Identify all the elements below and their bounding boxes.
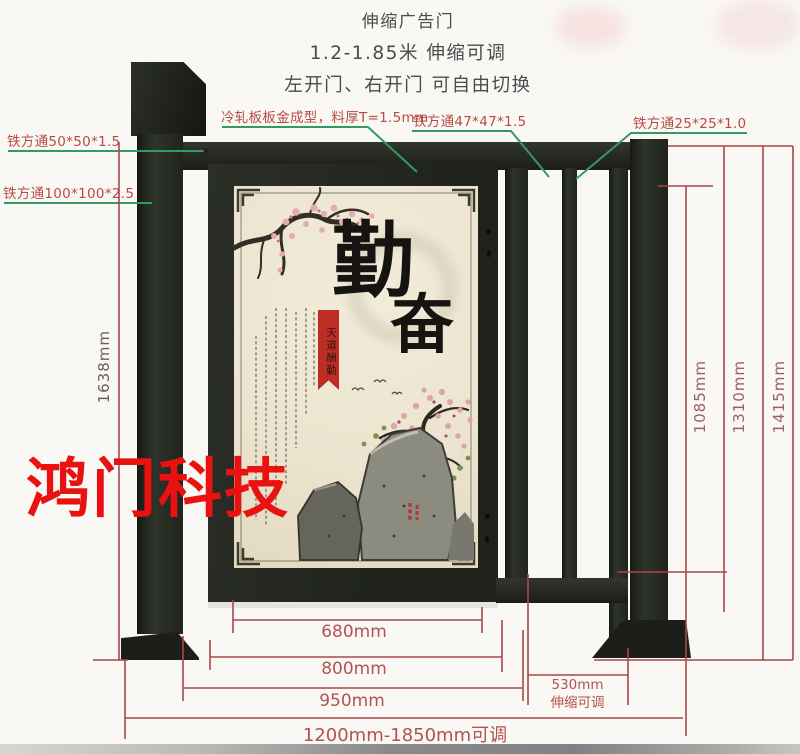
bottom-edge-band bbox=[0, 744, 800, 754]
telescopic-slat-2 bbox=[562, 168, 577, 600]
door-lock-dot bbox=[485, 536, 489, 543]
ink-rocks bbox=[298, 428, 474, 560]
callout-square-tube-100: 铁方通100*100*2.5 bbox=[3, 182, 134, 202]
callout-square-tube-25: 铁方通25*25*1.0 bbox=[633, 112, 746, 132]
gate-left-post bbox=[137, 134, 183, 634]
dim-telescopic-note: 伸缩可调 bbox=[535, 691, 620, 711]
dim-opening-height: 1085mm bbox=[691, 360, 709, 433]
callout-square-tube-50: 铁方通50*50*1.5 bbox=[7, 130, 120, 150]
page-subtitle-direction: 左开门、右开门 可自由切换 bbox=[0, 71, 800, 97]
telescopic-slat-3 bbox=[609, 168, 628, 640]
door-lock-dot bbox=[487, 250, 491, 257]
dim-post-height: 1638mm bbox=[95, 330, 113, 403]
callout-square-tube-47: 铁方通47*47*1.5 bbox=[413, 110, 526, 130]
telescopic-bottom-rail bbox=[496, 578, 628, 603]
calligraphy-fen: 奋 bbox=[390, 294, 454, 358]
birds bbox=[352, 380, 402, 394]
dim-total-height: 1415mm bbox=[770, 360, 788, 433]
page-title: 伸缩广告门 bbox=[0, 7, 800, 32]
dim-rail-height: 1310mm bbox=[730, 360, 748, 433]
dim-panel-width: 680mm bbox=[306, 622, 402, 642]
gate-right-post-base bbox=[592, 620, 691, 658]
watermark-brand: 鸿门科技 bbox=[26, 458, 290, 522]
callout-cold-rolled-panel: 冷轧板板金成型，料厚T=1.5mm bbox=[221, 106, 428, 126]
gate-left-post-base bbox=[121, 632, 199, 660]
door-lock-dot bbox=[486, 229, 491, 234]
page-subtitle-range: 1.2-1.85米 伸缩可调 bbox=[0, 39, 800, 65]
gate-right-post bbox=[630, 139, 668, 648]
seal-ribbon: 天道酬勤 bbox=[318, 310, 339, 390]
telescopic-slat-1 bbox=[505, 168, 528, 600]
product-diagram: 伸缩广告门 1.2-1.85米 伸缩可调 左开门、右开门 可自由切换 bbox=[0, 0, 800, 754]
seal-ribbon-text: 天道酬勤 bbox=[318, 310, 339, 390]
door-lock-dot bbox=[485, 514, 490, 519]
dim-door-total-width: 950mm bbox=[304, 691, 400, 711]
dim-door-width: 800mm bbox=[306, 659, 402, 679]
door-ground-shadow bbox=[208, 602, 498, 608]
